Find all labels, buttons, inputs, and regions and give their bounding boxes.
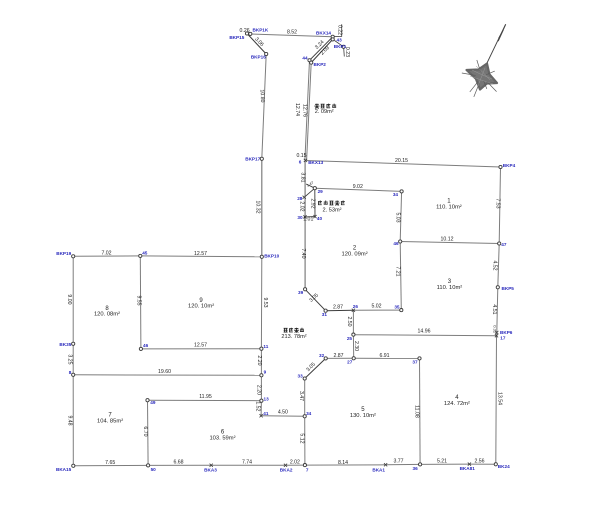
svg-text:36: 36 <box>413 466 419 471</box>
svg-text:2.02: 2.02 <box>290 460 300 466</box>
svg-text:BKP19: BKP19 <box>56 251 71 256</box>
svg-text:40: 40 <box>317 216 323 221</box>
svg-text:BKP6: BKP6 <box>500 330 513 335</box>
svg-text:0.23: 0.23 <box>344 47 350 57</box>
svg-text:2.87: 2.87 <box>333 304 343 310</box>
svg-text:BKP5: BKP5 <box>502 286 515 291</box>
svg-text:45: 45 <box>142 251 148 256</box>
svg-text:34: 34 <box>306 411 312 416</box>
svg-text:BK35: BK35 <box>59 342 71 347</box>
svg-text:7.40: 7.40 <box>300 248 306 258</box>
svg-text:25: 25 <box>347 336 353 341</box>
svg-text:3.25: 3.25 <box>67 354 73 364</box>
svg-text:3.06: 3.06 <box>253 36 264 48</box>
svg-text:2.02: 2.02 <box>299 201 305 211</box>
svg-text:31: 31 <box>322 312 328 317</box>
svg-text:30: 30 <box>297 215 303 220</box>
svg-text:32: 32 <box>319 353 325 358</box>
svg-text:12.74: 12.74 <box>294 103 300 116</box>
svg-text:2. 09m²: 2. 09m² <box>315 109 334 115</box>
svg-text:124. 72m²: 124. 72m² <box>444 401 470 407</box>
svg-text:BK24: BK24 <box>498 464 510 469</box>
svg-text:2.56: 2.56 <box>474 458 484 464</box>
svg-text:33: 33 <box>298 373 304 378</box>
svg-text:11: 11 <box>263 344 268 349</box>
svg-text:9: 9 <box>264 370 267 375</box>
svg-text:120. 08m²: 120. 08m² <box>94 312 120 318</box>
svg-text:12.57: 12.57 <box>194 342 207 348</box>
svg-text:BKA15: BKA15 <box>56 467 72 472</box>
svg-text:110. 10m²: 110. 10m² <box>437 285 463 291</box>
svg-text:BKA81: BKA81 <box>460 466 476 471</box>
svg-text:8.52: 8.52 <box>287 29 297 35</box>
svg-text:1.01: 1.01 <box>303 217 313 223</box>
svg-text:47: 47 <box>501 242 507 247</box>
svg-text:39: 39 <box>298 290 304 295</box>
svg-text:12.57: 12.57 <box>194 251 207 257</box>
svg-text:14.96: 14.96 <box>418 328 431 334</box>
svg-text:7.53: 7.53 <box>494 198 500 208</box>
svg-text:5.21: 5.21 <box>437 458 447 464</box>
svg-text:BKP4: BKP4 <box>503 163 516 168</box>
svg-text:43: 43 <box>337 38 343 43</box>
svg-text:49: 49 <box>150 400 156 405</box>
svg-text:9.48: 9.48 <box>67 415 73 425</box>
svg-text:27: 27 <box>347 359 353 364</box>
svg-text:BKP2: BKP2 <box>314 62 327 67</box>
svg-text:2.20: 2.20 <box>255 385 261 395</box>
svg-text:11.08: 11.08 <box>414 405 420 418</box>
svg-text:2.92: 2.92 <box>310 198 316 208</box>
svg-text:6: 6 <box>299 160 302 165</box>
svg-text:2.20: 2.20 <box>256 355 262 365</box>
svg-text:3.05: 3.05 <box>305 362 316 373</box>
svg-text:0.26: 0.26 <box>240 28 250 34</box>
svg-text:12.76: 12.76 <box>301 104 307 117</box>
svg-text:3.47: 3.47 <box>298 391 304 401</box>
svg-text:120. 09m²: 120. 09m² <box>342 251 368 257</box>
svg-text:17: 17 <box>500 336 506 341</box>
svg-text:0.22: 0.22 <box>337 25 343 35</box>
svg-text:5.03: 5.03 <box>394 212 400 222</box>
svg-text:46: 46 <box>143 343 149 348</box>
svg-text:3.77: 3.77 <box>393 458 403 464</box>
svg-text:10.80: 10.80 <box>259 89 265 102</box>
svg-text:BKP1K: BKP1K <box>253 28 269 33</box>
svg-text:104. 85m²: 104. 85m² <box>97 418 123 424</box>
svg-text:37: 37 <box>412 359 418 364</box>
svg-text:13: 13 <box>264 397 270 402</box>
svg-text:2.87: 2.87 <box>333 353 343 359</box>
svg-text:BKP15: BKP15 <box>229 35 244 40</box>
svg-text:6.70: 6.70 <box>142 426 148 436</box>
svg-text:7.65: 7.65 <box>105 460 115 466</box>
svg-text:BKA2: BKA2 <box>280 467 293 472</box>
svg-text:120. 10m²: 120. 10m² <box>188 304 214 310</box>
svg-text:41: 41 <box>263 411 269 416</box>
svg-text:8.14: 8.14 <box>338 460 348 466</box>
svg-text:BKP16: BKP16 <box>251 55 266 60</box>
svg-text:9.00: 9.00 <box>66 294 72 304</box>
svg-text:6.68: 6.68 <box>173 460 183 466</box>
svg-text:29: 29 <box>318 189 324 194</box>
svg-text:BKX14: BKX14 <box>316 31 331 36</box>
svg-text:26: 26 <box>353 304 359 309</box>
svg-text:9.55: 9.55 <box>135 295 141 305</box>
svg-text:3.81: 3.81 <box>300 172 306 182</box>
svg-text:19.60: 19.60 <box>158 369 171 375</box>
svg-text:7: 7 <box>306 467 309 472</box>
svg-text:35: 35 <box>394 304 400 309</box>
svg-text:6.91: 6.91 <box>379 353 389 359</box>
svg-text:2. 53m²: 2. 53m² <box>323 207 342 213</box>
svg-text:4.52: 4.52 <box>491 260 497 270</box>
svg-text:20.15: 20.15 <box>395 158 408 164</box>
svg-text:7.74: 7.74 <box>242 460 252 466</box>
svg-text:BKA1: BKA1 <box>372 467 385 472</box>
svg-text:BKX13: BKX13 <box>308 160 323 165</box>
svg-text:9.02: 9.02 <box>353 184 363 190</box>
svg-text:2.50: 2.50 <box>346 316 352 326</box>
svg-text:9.53: 9.53 <box>262 297 268 307</box>
svg-text:213. 78m²: 213. 78m² <box>281 334 306 340</box>
svg-text:4.50: 4.50 <box>278 410 288 416</box>
svg-text:103. 59m²: 103. 59m² <box>209 435 235 441</box>
svg-text:0.15: 0.15 <box>296 153 306 159</box>
svg-text:4.51: 4.51 <box>491 304 497 314</box>
svg-text:50: 50 <box>151 467 157 472</box>
svg-text:BKA3: BKA3 <box>204 467 217 472</box>
svg-text:44: 44 <box>302 55 308 60</box>
svg-text:7.21: 7.21 <box>395 266 401 276</box>
svg-text:1.52: 1.52 <box>254 401 260 411</box>
svg-text:BKP17: BKP17 <box>245 157 260 162</box>
svg-text:7.02: 7.02 <box>101 251 111 257</box>
svg-text:46: 46 <box>393 241 399 246</box>
svg-text:BKP10: BKP10 <box>264 254 279 259</box>
svg-text:5.02: 5.02 <box>371 304 381 310</box>
svg-text:28: 28 <box>297 196 303 201</box>
svg-text:110. 10m²: 110. 10m² <box>436 204 462 210</box>
svg-text:13.54: 13.54 <box>497 392 503 405</box>
svg-text:10.32: 10.32 <box>254 201 260 214</box>
svg-text:11.95: 11.95 <box>199 394 212 400</box>
svg-text:5.12: 5.12 <box>299 433 305 443</box>
svg-text:34: 34 <box>393 192 399 197</box>
svg-text:1.47: 1.47 <box>306 181 314 188</box>
svg-text:0.32: 0.32 <box>493 325 498 334</box>
svg-text:8: 8 <box>69 370 72 375</box>
svg-text:2.30: 2.30 <box>353 341 359 351</box>
svg-text:130. 10m²: 130. 10m² <box>350 413 376 419</box>
svg-text:10.12: 10.12 <box>441 237 454 243</box>
